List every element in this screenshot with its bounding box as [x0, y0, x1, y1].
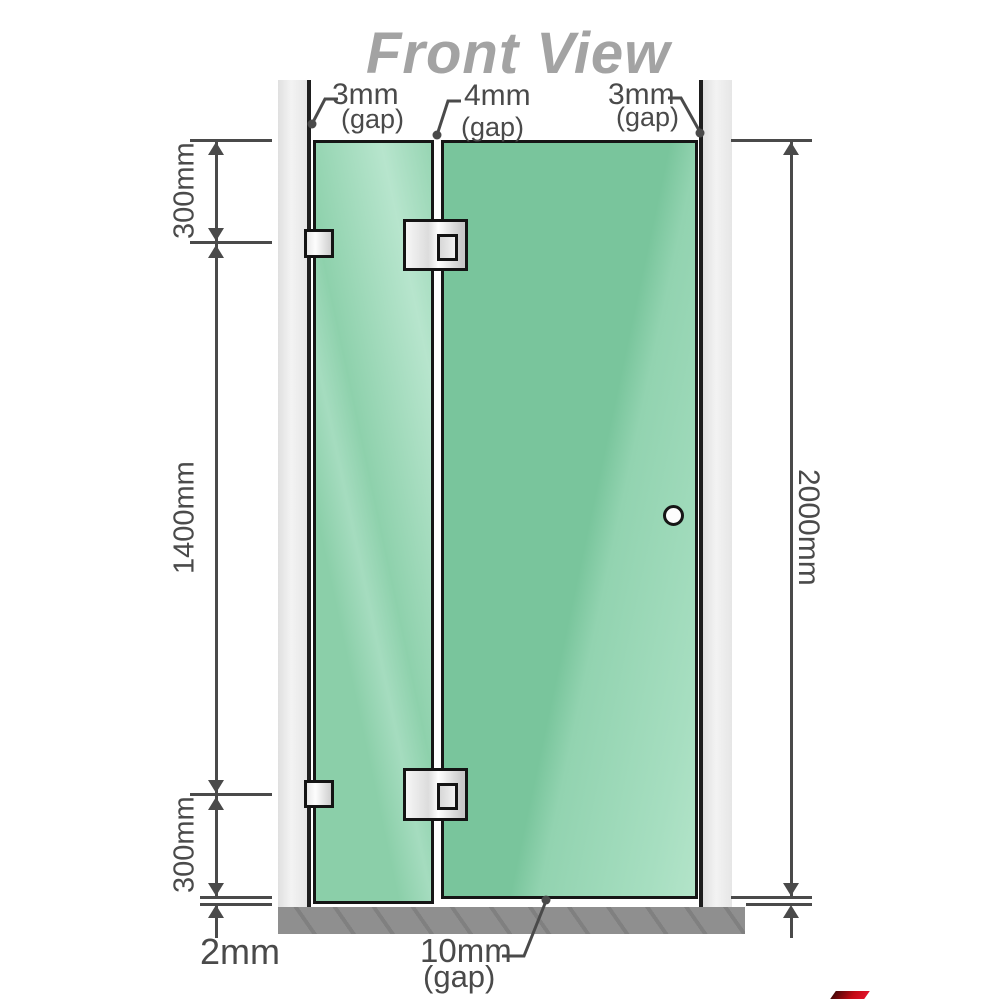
dim-tick-right-floor	[746, 903, 812, 906]
logo-fragment	[830, 991, 870, 999]
front-view-diagram: Front View 300mm 1400mm 300mm 2mm 2000mm	[0, 0, 1000, 1000]
dim-tick-right-top	[731, 139, 812, 142]
floor-base	[278, 907, 745, 934]
dim-label-1400mm: 1400mm	[168, 243, 202, 793]
wall-bracket-bottom	[304, 780, 334, 808]
right-wall	[703, 80, 732, 907]
gap-label-middle-qualifier: (gap)	[461, 113, 524, 141]
door-hinge-bottom	[403, 768, 468, 821]
arrow-down-icon	[208, 780, 224, 793]
arrow-down-icon	[208, 228, 224, 241]
wall-bracket-top	[304, 229, 334, 258]
left-wall	[278, 80, 307, 907]
arrow-down-icon	[783, 883, 799, 896]
door-knob	[663, 505, 684, 526]
arrow-down-icon	[208, 883, 224, 896]
gap-label-left-qualifier: (gap)	[341, 105, 404, 133]
dim-tick-glass-bottom	[200, 896, 272, 899]
gap-label-middle-value: 4mm	[464, 80, 531, 112]
dim-tick-top	[190, 139, 272, 142]
hinge-knuckle	[437, 783, 458, 810]
dim-line-right-tail	[790, 917, 793, 938]
gap-label-right-qualifier: (gap)	[616, 103, 679, 131]
arrow-up-icon	[208, 905, 224, 918]
hinge-knuckle	[437, 234, 458, 261]
arrow-up-icon	[208, 142, 224, 155]
arrow-up-icon	[783, 142, 799, 155]
dim-label-top-300mm: 300mm	[168, 139, 202, 243]
door-gap-label-qualifier: (gap)	[423, 961, 495, 994]
arrow-up-icon	[208, 245, 224, 258]
dim-tick-300	[190, 241, 272, 244]
dim-tick-right-bottom	[731, 896, 812, 899]
dim-line-1400	[215, 244, 218, 793]
page-title: Front View	[366, 20, 670, 87]
dim-tick-1400	[190, 793, 272, 796]
dim-label-2mm: 2mm	[200, 933, 280, 971]
arrow-up-icon	[783, 905, 799, 918]
dim-line-300-top	[215, 142, 218, 241]
door-glass-panel	[441, 140, 698, 899]
dim-label-2000mm: 2000mm	[791, 400, 825, 655]
dim-label-bottom-300mm: 300mm	[168, 793, 202, 896]
arrow-up-icon	[208, 797, 224, 810]
dim-line-300-bottom	[215, 796, 218, 896]
door-hinge-top	[403, 219, 468, 271]
